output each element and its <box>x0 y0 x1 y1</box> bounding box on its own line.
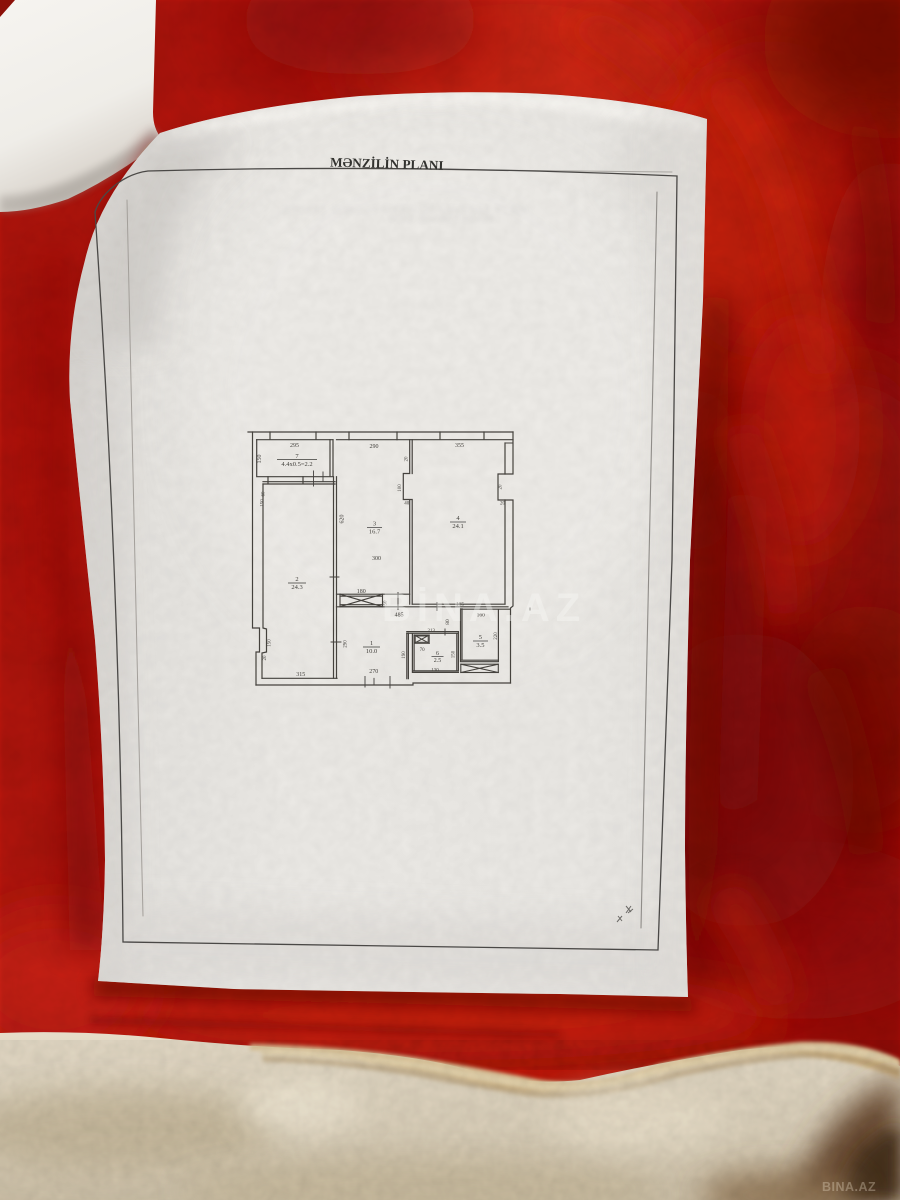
svg-text:290: 290 <box>370 444 379 450</box>
svg-text:20: 20 <box>405 456 410 462</box>
svg-text:150: 150 <box>452 650 457 658</box>
svg-text:150: 150 <box>268 639 273 647</box>
svg-text:355: 355 <box>455 443 464 449</box>
svg-text:20: 20 <box>499 484 504 490</box>
svg-text:180: 180 <box>357 589 366 595</box>
svg-text:60: 60 <box>262 491 267 497</box>
svg-text:3: 3 <box>373 521 376 528</box>
svg-text:2.5: 2.5 <box>434 658 442 664</box>
svg-text:10.0: 10.0 <box>366 648 377 655</box>
svg-text:BİNA.AZ: BİNA.AZ <box>382 586 586 630</box>
svg-text:20: 20 <box>500 502 506 507</box>
svg-text:ƏRZ DAIRƏ BLOK: ƏRZ DAIRƏ BLOK <box>390 213 496 225</box>
svg-text:620: 620 <box>340 515 346 524</box>
svg-text:300: 300 <box>372 556 381 562</box>
svg-text:295: 295 <box>290 443 299 449</box>
svg-text:70: 70 <box>420 648 426 653</box>
svg-text:150: 150 <box>261 499 266 507</box>
svg-text:4.4x0.5=2.2: 4.4x0.5=2.2 <box>281 461 312 468</box>
svg-text:6: 6 <box>436 651 439 657</box>
svg-text:2: 2 <box>295 576 298 583</box>
svg-text:315: 315 <box>296 672 305 678</box>
svg-text:24.3: 24.3 <box>291 584 302 591</box>
svg-text:1: 1 <box>370 640 373 647</box>
svg-text:290: 290 <box>344 640 349 648</box>
svg-text:BINA.AZ: BINA.AZ <box>822 1180 876 1194</box>
svg-text:16.7: 16.7 <box>369 529 381 536</box>
svg-text:40: 40 <box>404 502 410 507</box>
svg-text:100: 100 <box>398 484 403 492</box>
svg-text:24.1: 24.1 <box>452 523 463 530</box>
svg-text:190: 190 <box>402 651 407 659</box>
svg-text:20: 20 <box>263 655 268 661</box>
svg-text:130: 130 <box>431 669 439 674</box>
svg-text:3.5: 3.5 <box>476 642 484 649</box>
svg-text:150: 150 <box>257 455 263 464</box>
svg-text:5: 5 <box>479 634 482 641</box>
svg-text:220: 220 <box>494 632 499 640</box>
svg-text:270: 270 <box>369 669 378 675</box>
